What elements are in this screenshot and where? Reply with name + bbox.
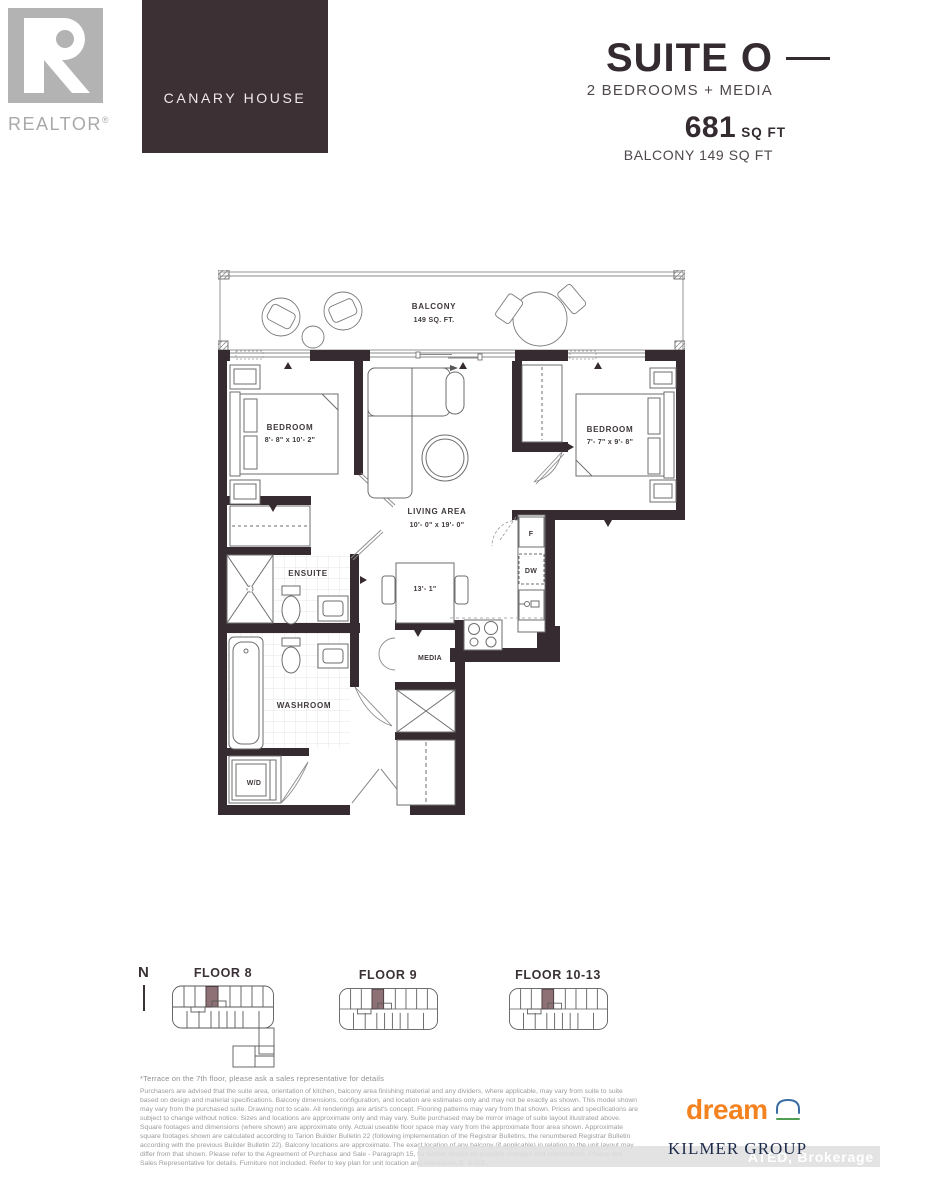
realtor-wordmark: REALTOR® xyxy=(8,114,118,135)
building-name: CANARY HOUSE xyxy=(142,90,328,106)
realtor-logo: REALTOR® xyxy=(8,8,118,135)
washroom-label: WASHROOM xyxy=(277,701,332,710)
bedroom1-closet xyxy=(230,506,310,546)
fridge-label: F xyxy=(529,531,534,538)
keyplan-floor8: FLOOR 8 xyxy=(168,966,278,1068)
terrace-note: *Terrace on the 7th floor, please ask a … xyxy=(140,1074,384,1083)
keyplan-floor8-map xyxy=(171,984,275,1068)
kilmer-group-logo: KILMER GROUP xyxy=(668,1139,807,1159)
keyplan-floor9: FLOOR 9 xyxy=(336,968,440,1032)
ensuite-label: ENSUITE xyxy=(288,569,328,578)
media-label: MEDIA xyxy=(418,655,442,662)
balcony-furniture xyxy=(262,283,587,348)
keyplan-floor9-label: FLOOR 9 xyxy=(359,968,417,982)
living-furniture xyxy=(368,368,468,623)
canary-house-logo-box: CANARY HOUSE xyxy=(142,0,328,153)
table-dim-label: 13'- 1" xyxy=(413,586,436,593)
bedroom1-furniture xyxy=(230,365,338,504)
realtor-r-icon xyxy=(8,8,103,103)
suite-area: 681SQ FT xyxy=(587,111,830,145)
dishwasher-label: DW xyxy=(525,568,537,575)
north-indicator: N xyxy=(138,964,158,1011)
living-dims: 10'- 0" x 19'- 0" xyxy=(410,522,465,529)
dream-wordmark: dream xyxy=(686,1096,768,1124)
floorplan-sheet: REALTOR® CANARY HOUSE SUITE O 2 BEDROOMS… xyxy=(0,0,927,1200)
suite-header: SUITE O 2 BEDROOMS + MEDIA 681SQ FT BALC… xyxy=(587,38,830,163)
balcony-area: BALCONY 149 SQ FT xyxy=(587,147,830,163)
north-tick xyxy=(143,985,145,1011)
north-label: N xyxy=(138,964,158,981)
dream-house-icon xyxy=(774,1096,802,1124)
bedroom1-dims: 8'- 8" x 10'- 2" xyxy=(265,437,316,444)
bedroom2-dims: 7'- 7" x 9'- 8" xyxy=(587,439,633,446)
keyplan-floor8-label: FLOOR 8 xyxy=(194,966,252,980)
brokerage-watermark: ATED, Brokerage xyxy=(418,1146,880,1167)
keyplan-floor9-map xyxy=(338,986,439,1032)
door-swing-arrow-icon xyxy=(450,365,458,371)
bedroom2-door xyxy=(534,452,564,484)
area-unit: SQ FT xyxy=(741,125,786,140)
keyplan-floor10-13-label: FLOOR 10-13 xyxy=(515,968,601,982)
top-wall xyxy=(218,350,685,361)
washer-dryer-label: W/D xyxy=(247,780,262,787)
keyplan-floor10-13: FLOOR 10-13 xyxy=(506,968,610,1032)
suite-title: SUITE O xyxy=(606,38,773,78)
hall-closets xyxy=(397,690,455,805)
balcony-dims: 149 SQ. FT. xyxy=(414,317,455,324)
dream-logo: dream xyxy=(686,1096,802,1124)
bedroom2-label: BEDROOM xyxy=(587,425,634,434)
floorplan-drawing: BALCONY 149 SQ. FT. xyxy=(218,270,685,820)
area-value: 681 xyxy=(685,111,737,144)
balcony-label: BALCONY xyxy=(412,302,456,311)
bedroom1-label: BEDROOM xyxy=(267,423,314,432)
living-label: LIVING AREA xyxy=(408,507,467,516)
registered-mark: ® xyxy=(102,115,110,125)
title-dash xyxy=(786,57,830,60)
suite-subtitle: 2 BEDROOMS + MEDIA xyxy=(587,82,830,99)
keyplan-floor10-13-map xyxy=(508,986,609,1032)
